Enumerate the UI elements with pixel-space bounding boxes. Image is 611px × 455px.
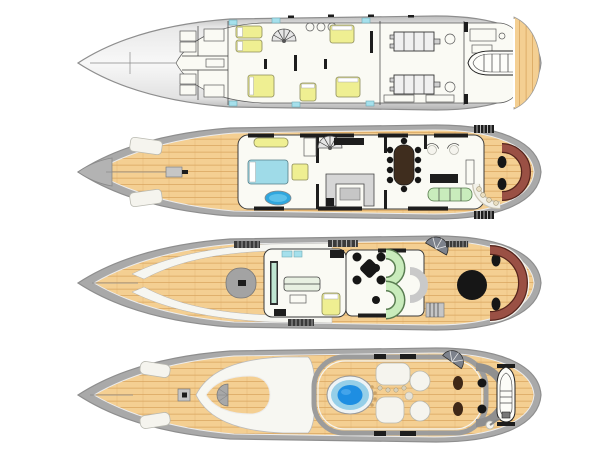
dining-table [394, 145, 414, 185]
game-chair [377, 276, 386, 285]
dining-chair [401, 186, 407, 192]
bathroom-fixture [229, 101, 237, 106]
bar-stool [477, 187, 482, 192]
dining-chair [387, 157, 393, 163]
nav-equipment [294, 251, 302, 257]
workbench [384, 95, 414, 102]
crew-bunk [180, 74, 196, 84]
deck-vent [374, 431, 386, 436]
cocktail-table [453, 376, 463, 390]
crew-mess-table [206, 59, 224, 67]
galley-appliance [326, 198, 334, 206]
game-chair [353, 253, 362, 262]
sideboard [466, 160, 474, 184]
galley-island [340, 188, 360, 200]
chart-table [290, 295, 306, 303]
tender-engine [502, 412, 510, 418]
bar-stool [394, 388, 398, 392]
captain-bed [322, 293, 340, 315]
cocktail-table [498, 156, 507, 168]
portlight [368, 15, 374, 18]
crew-bunk [180, 31, 196, 41]
mast-fitting [478, 379, 487, 388]
guest-bed [336, 77, 360, 97]
tv-cabinet [430, 174, 458, 183]
wheelhouse [264, 249, 346, 317]
guest-bed [236, 26, 262, 38]
guest-bed [330, 25, 354, 43]
bathroom-fixture [272, 18, 280, 23]
deck-vent [374, 354, 386, 359]
sun-lounge-seat [376, 397, 404, 423]
side-table [372, 296, 380, 304]
bar-stool [481, 193, 486, 198]
porthole [317, 23, 325, 31]
cocktail-table [498, 178, 507, 190]
fuel-tank [445, 34, 455, 44]
dining-chair [415, 167, 421, 173]
deck-plans-svg: Lower deck [0, 0, 611, 455]
engine [390, 75, 440, 94]
sun-bar [376, 363, 410, 385]
bar-stool [402, 386, 406, 390]
vent-louvre [446, 241, 468, 247]
cocktail-table [492, 298, 501, 311]
jacuzzi-step [370, 385, 374, 389]
main-deck-plan: Main deck [78, 125, 541, 219]
bathtub [265, 191, 291, 205]
crew-bunk [180, 42, 196, 52]
crew-bunk [204, 29, 224, 41]
boarding-ladder [474, 125, 494, 133]
mast-fitting [478, 405, 487, 414]
game-chair [353, 276, 362, 285]
guest-bed [300, 83, 316, 101]
owner-armchair [292, 164, 308, 180]
jacuzzi-step [373, 391, 377, 395]
crew-bunk [180, 85, 196, 95]
tender-chock [497, 422, 515, 426]
salon-sofa [428, 188, 472, 201]
jacuzzi-step [370, 403, 374, 407]
dining-chair [387, 147, 393, 153]
portlight [408, 15, 414, 18]
crew-bunk [204, 85, 224, 97]
swim-platform [514, 17, 540, 109]
dining-chair [401, 138, 407, 144]
galley-cabinet [334, 138, 364, 145]
round-sofa [410, 371, 430, 391]
jacuzzi-step [373, 397, 377, 401]
bathroom-fixture [366, 101, 374, 106]
guest-bed [248, 75, 274, 97]
nav-equipment [282, 251, 292, 257]
dining-chair [415, 147, 421, 153]
round-sofa [410, 401, 430, 421]
yacht-deck-plans-image: Lower deck [0, 0, 611, 455]
guest-bed [236, 40, 262, 52]
game-chair [377, 253, 386, 262]
porthole [306, 23, 314, 31]
bar-stool [386, 388, 390, 392]
owner-bed [248, 160, 288, 184]
portlight [328, 15, 334, 18]
vent-louvre [288, 319, 314, 326]
bar-stool [378, 386, 382, 390]
dining-chair [415, 157, 421, 163]
boarding-ladder [474, 211, 494, 219]
windlass [166, 167, 182, 177]
lower-deck-plan: Lower deck [78, 15, 541, 111]
bathroom-fixture [292, 102, 300, 107]
side-table [372, 264, 380, 272]
bar-stool [487, 198, 492, 203]
side-table [405, 392, 413, 400]
dining-chair [415, 177, 421, 183]
dining-chair [387, 167, 393, 173]
bathroom-fixture [229, 20, 237, 25]
fuel-tank [445, 82, 455, 92]
vent-louvre [234, 241, 260, 248]
cocktail-table [453, 402, 463, 416]
sun-deck-plan: Sun deck [78, 346, 541, 442]
deck-vent [400, 354, 416, 359]
portlight [288, 16, 294, 19]
bathroom-fixture [362, 18, 370, 23]
workbench [426, 95, 454, 102]
round-table [457, 270, 487, 300]
stowed-tender [497, 364, 515, 426]
garage-console [470, 29, 496, 41]
bar-stool [494, 201, 499, 206]
wardrobe [304, 138, 316, 156]
deck-vent [400, 431, 416, 436]
vent-louvre [328, 240, 358, 247]
sky-lounge [346, 249, 424, 318]
bridge-deck-plan: Bridge deck [78, 233, 541, 330]
engine [390, 32, 440, 51]
owner-sofa [254, 138, 288, 147]
stairs-down [426, 303, 444, 317]
dining-chair [387, 177, 393, 183]
